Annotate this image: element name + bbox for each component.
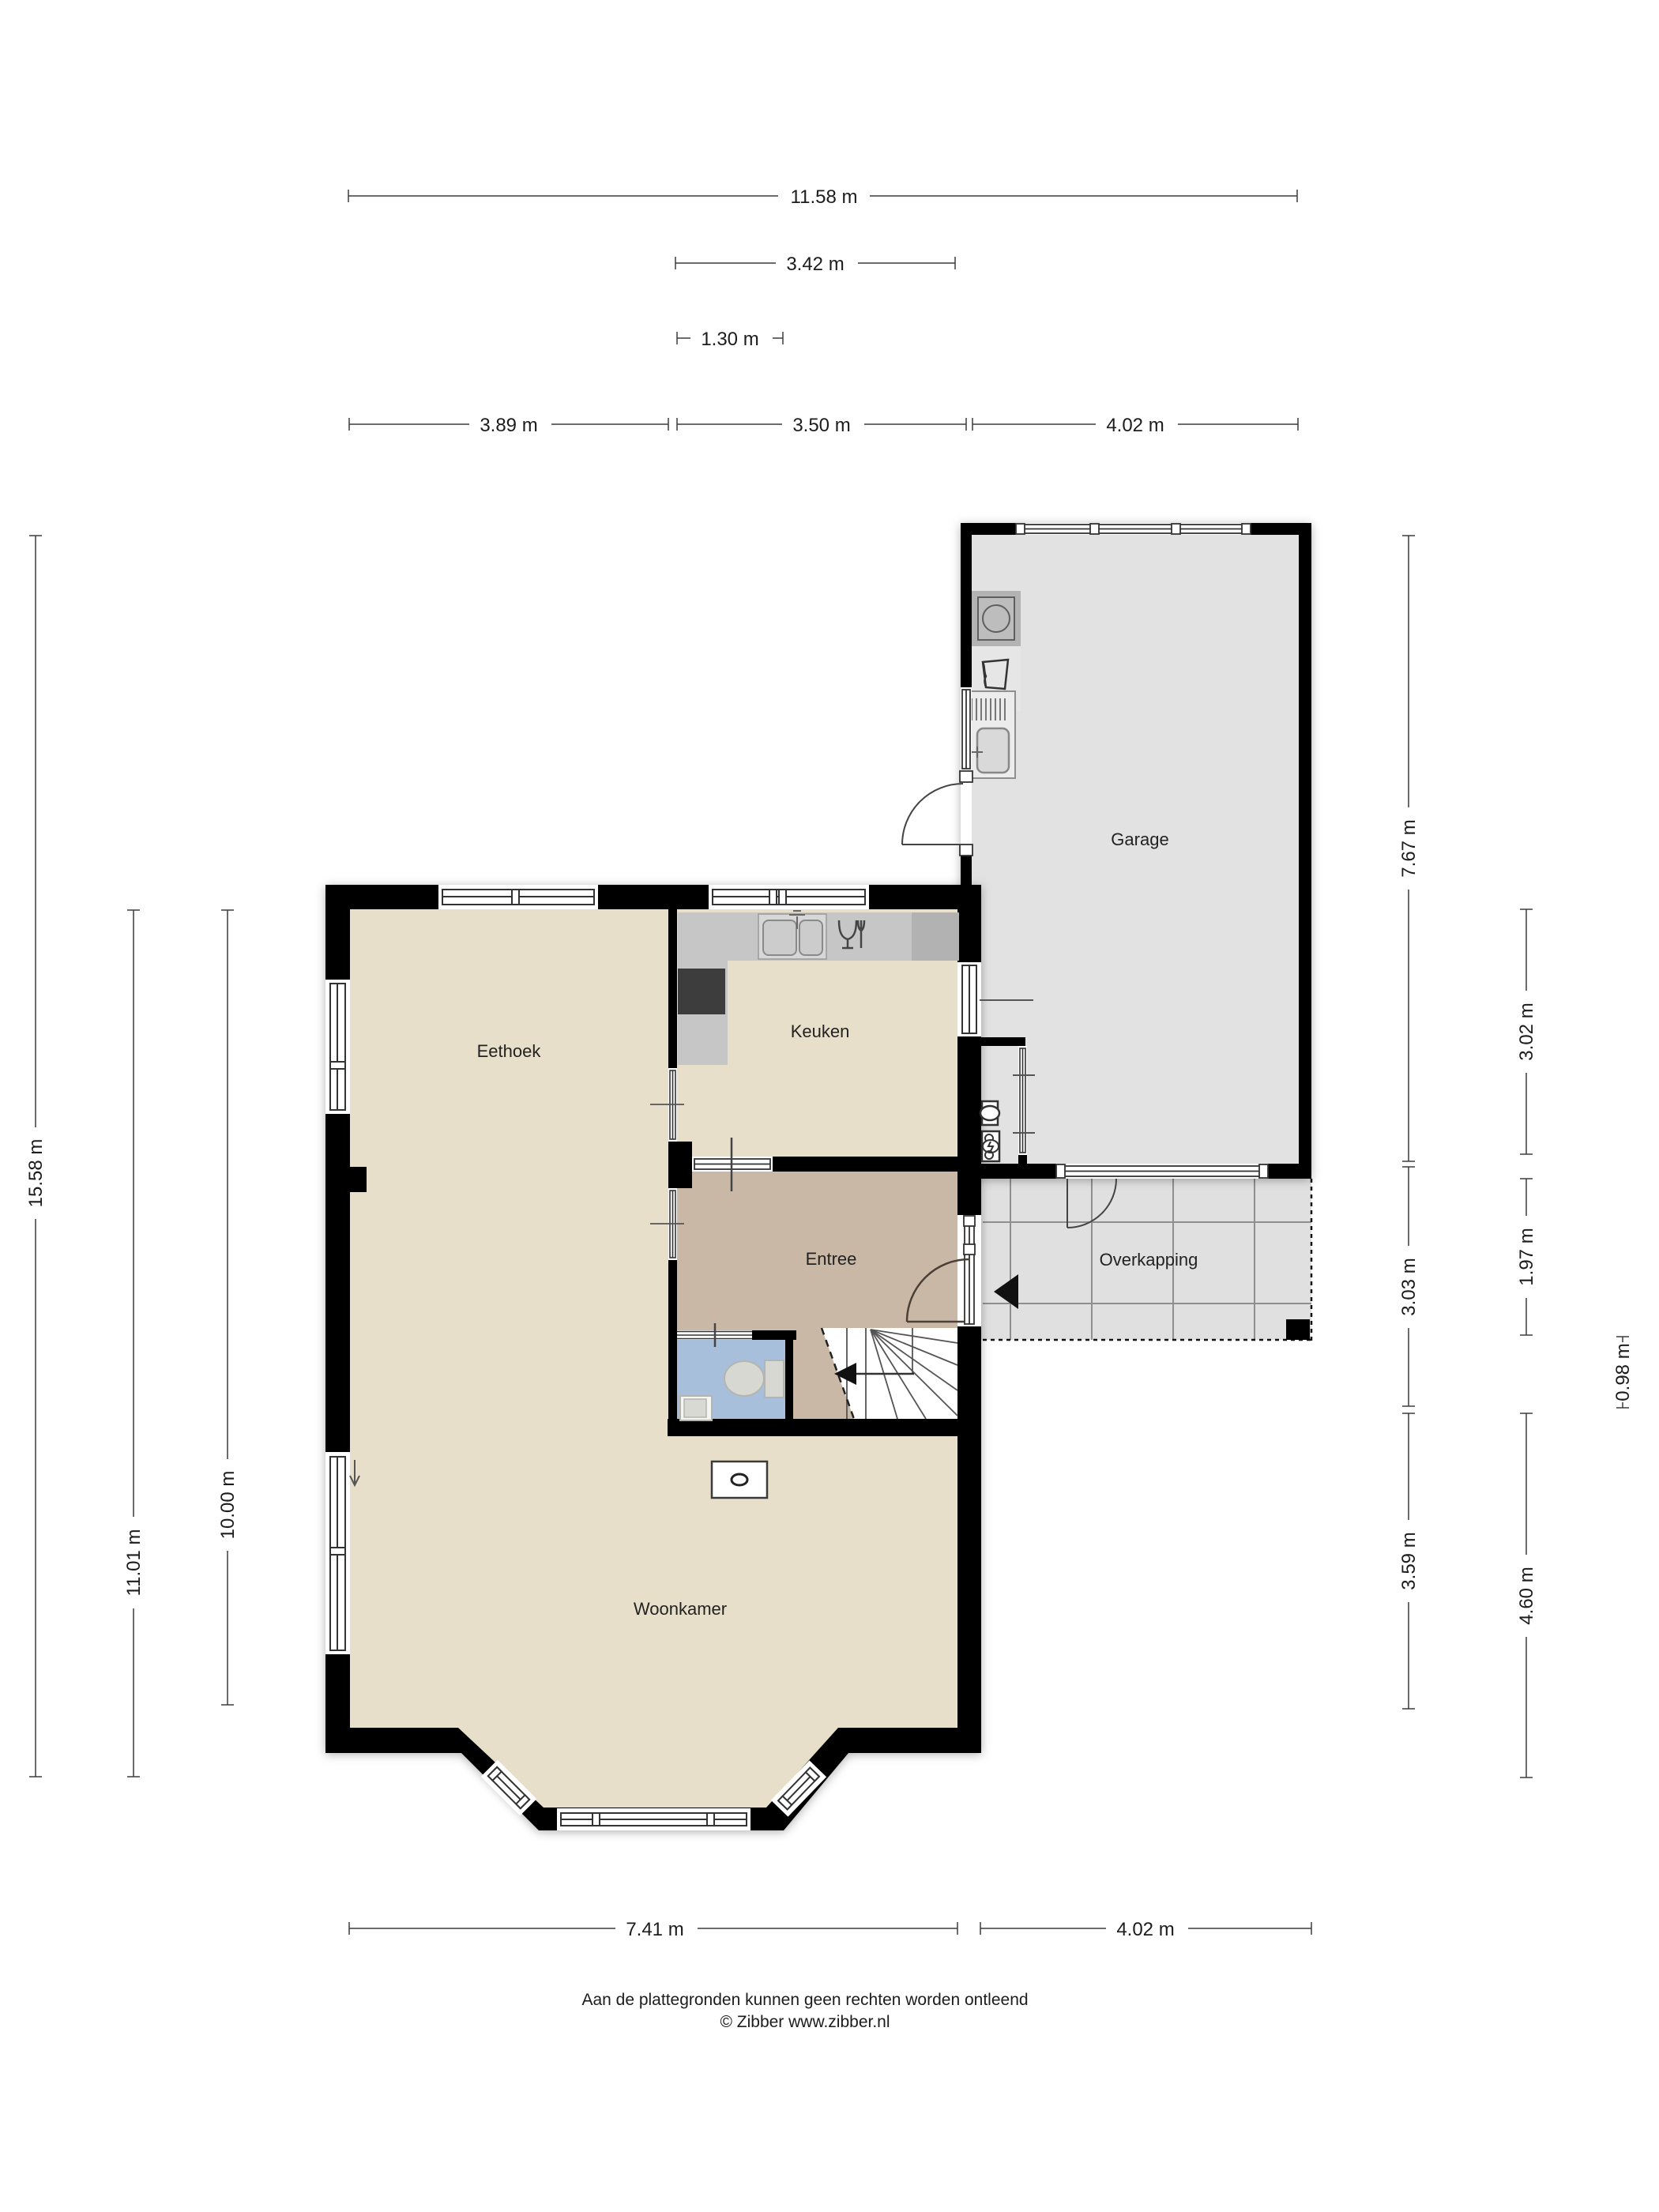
- svg-text:Eethoek: Eethoek: [477, 1041, 542, 1061]
- svg-text:Keuken: Keuken: [791, 1021, 850, 1041]
- svg-text:10.00 m: 10.00 m: [217, 1471, 239, 1540]
- svg-text:11.58 m: 11.58 m: [791, 186, 858, 208]
- svg-text:1.30 m: 1.30 m: [701, 329, 758, 350]
- svg-text:1.97 m: 1.97 m: [1516, 1228, 1537, 1285]
- svg-text:3.50 m: 3.50 m: [792, 415, 850, 436]
- svg-text:7.41 m: 7.41 m: [626, 1919, 683, 1940]
- svg-text:0.98 m: 0.98 m: [1612, 1343, 1634, 1401]
- svg-text:3.02 m: 3.02 m: [1516, 1003, 1537, 1060]
- svg-text:4.02 m: 4.02 m: [1106, 415, 1164, 436]
- svg-text:11.01 m: 11.01 m: [123, 1529, 145, 1597]
- svg-text:Garage: Garage: [1111, 829, 1168, 849]
- svg-text:3.89 m: 3.89 m: [480, 415, 537, 436]
- svg-text:Woonkamer: Woonkamer: [634, 1599, 727, 1619]
- svg-text:15.58 m: 15.58 m: [25, 1139, 47, 1208]
- svg-text:7.67 m: 7.67 m: [1398, 819, 1420, 877]
- svg-text:3.42 m: 3.42 m: [786, 254, 844, 275]
- svg-text:3.03 m: 3.03 m: [1398, 1258, 1420, 1315]
- svg-text:© Zibber www.zibber.nl: © Zibber www.zibber.nl: [720, 2013, 890, 2031]
- svg-text:3.59 m: 3.59 m: [1398, 1532, 1420, 1589]
- svg-text:Overkapping: Overkapping: [1100, 1250, 1198, 1270]
- svg-text:Entree: Entree: [806, 1249, 857, 1269]
- svg-text:4.60 m: 4.60 m: [1516, 1567, 1537, 1624]
- svg-text:Aan de plattegronden kunnen ge: Aan de plattegronden kunnen geen rechten…: [581, 1991, 1028, 2009]
- svg-text:4.02 m: 4.02 m: [1116, 1919, 1174, 1940]
